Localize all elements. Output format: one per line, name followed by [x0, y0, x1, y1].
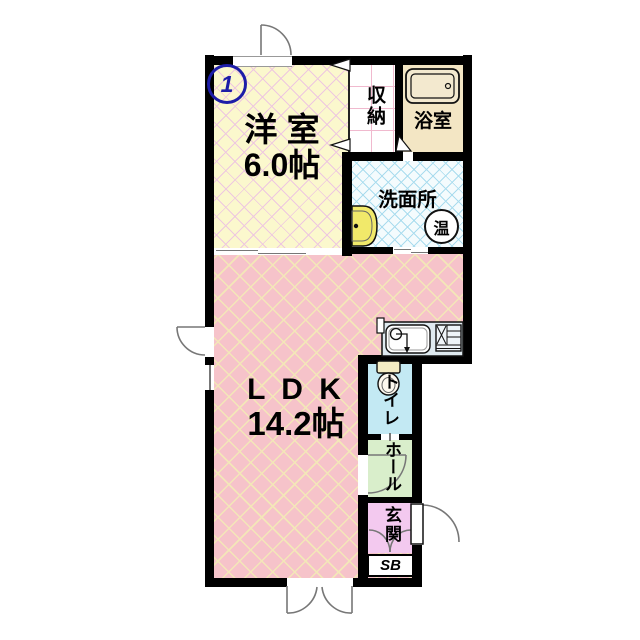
- kitchen-counter: [377, 318, 463, 356]
- western-room-name: 洋 室: [214, 112, 350, 148]
- western-room-size: 6.0帖: [214, 148, 350, 183]
- bathroom-label: 浴室: [403, 112, 463, 133]
- bath-door-triangle: [396, 136, 411, 151]
- ldk-name: L D K: [214, 374, 378, 406]
- door-arc: [261, 25, 291, 55]
- shoe-box: SB: [367, 554, 414, 577]
- washbasin-icon: [352, 206, 377, 246]
- entrance-label: 玄関: [379, 506, 404, 544]
- closet-door-triangle: [331, 59, 350, 71]
- western-room-label: 洋 室 6.0帖: [214, 112, 350, 182]
- door-arc: [287, 587, 317, 613]
- bathtub-icon: [406, 69, 459, 103]
- counter-handle: [377, 318, 384, 333]
- door-arc: [423, 505, 459, 542]
- floorplan: 1 温 SB 洋 室 6.0帖 L D K 14.2帖 収納 浴室 洗面所 トイ…: [0, 0, 640, 640]
- toilet-label: トイレ: [377, 373, 402, 427]
- hall-label: ホール: [379, 441, 404, 492]
- door-arc: [177, 327, 205, 355]
- ldk-size: 14.2帖: [214, 406, 378, 442]
- fixtures-layer: [0, 0, 640, 640]
- closet-label: 収納: [361, 85, 388, 127]
- stove-icon: [436, 325, 461, 351]
- entrance-door-leaf: [411, 504, 423, 544]
- door-arc: [322, 587, 352, 613]
- ldk-label: L D K 14.2帖: [214, 374, 378, 442]
- washroom-label: 洗面所: [352, 190, 463, 211]
- water-heater-badge: 温: [424, 209, 459, 244]
- unit-number-badge: 1: [207, 64, 247, 104]
